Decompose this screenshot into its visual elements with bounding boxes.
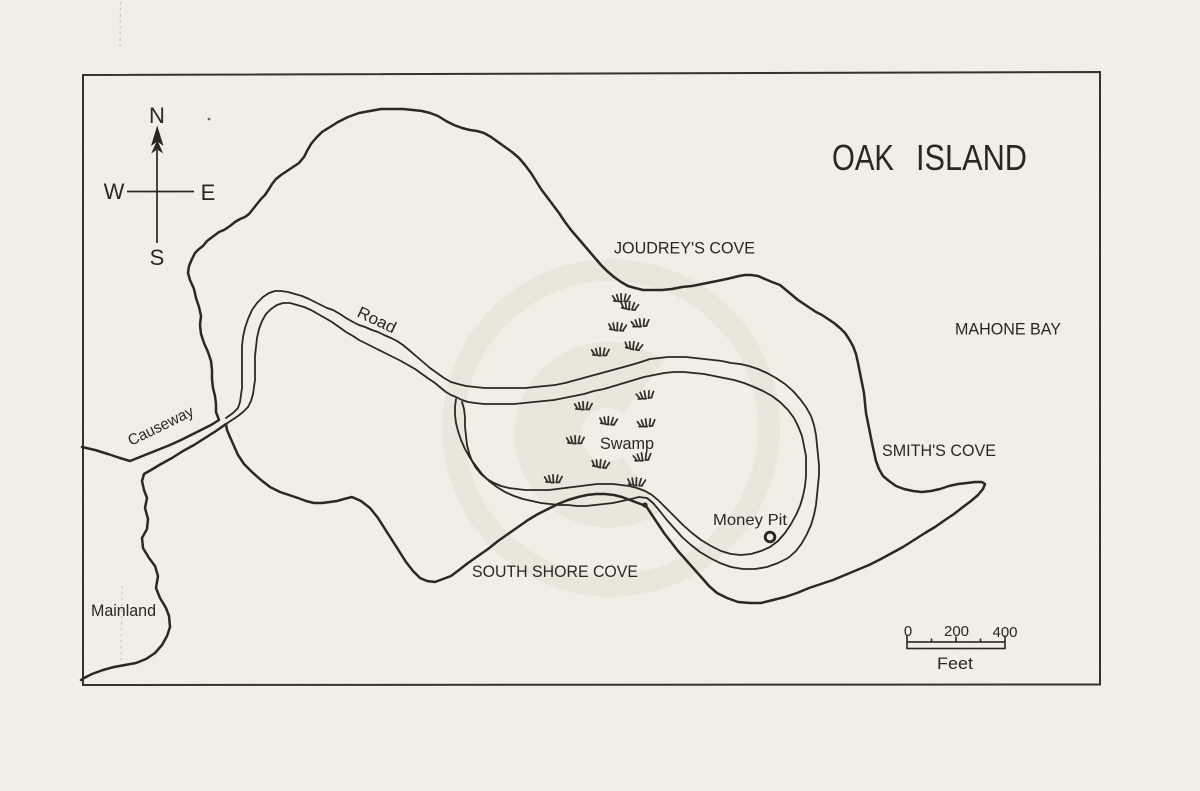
svg-text:Feet: Feet	[937, 655, 973, 673]
svg-text:SMITH'S COVE: SMITH'S COVE	[882, 442, 996, 460]
svg-text:Mainland: Mainland	[91, 602, 156, 620]
svg-text:N: N	[149, 103, 165, 128]
svg-text:Money Pit: Money Pit	[713, 512, 788, 529]
svg-text:OAK: OAK	[832, 137, 894, 178]
svg-text:JOUDREY'S COVE: JOUDREY'S COVE	[614, 240, 755, 258]
svg-text:W: W	[104, 179, 125, 204]
svg-text:200: 200	[944, 623, 969, 640]
svg-text:400: 400	[992, 624, 1017, 641]
svg-text:E: E	[201, 180, 216, 205]
svg-text:0: 0	[904, 623, 912, 640]
svg-text:SOUTH SHORE COVE: SOUTH SHORE COVE	[472, 563, 638, 581]
svg-text:Swamp: Swamp	[600, 434, 654, 453]
svg-text:ISLAND: ISLAND	[916, 137, 1027, 178]
svg-text:MAHONE BAY: MAHONE BAY	[955, 320, 1061, 339]
svg-text:S: S	[150, 245, 165, 270]
